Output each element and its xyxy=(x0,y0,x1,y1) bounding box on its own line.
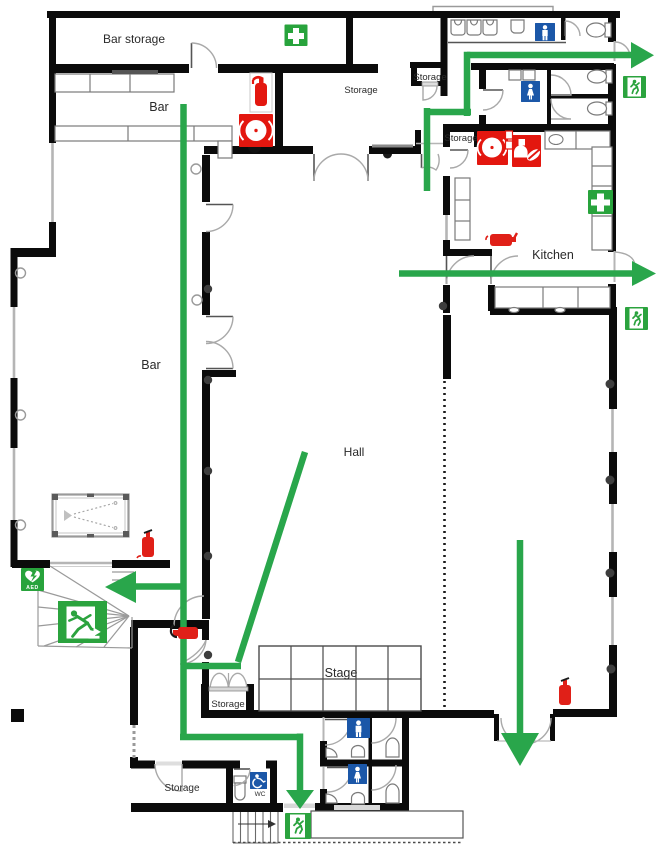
svg-text:Storage: Storage xyxy=(444,133,477,144)
svg-text:Kitchen: Kitchen xyxy=(532,248,574,262)
svg-text:WC: WC xyxy=(255,791,266,798)
svg-text:Storage: Storage xyxy=(164,783,199,794)
svg-text:Storage: Storage xyxy=(211,699,244,710)
svg-text:Stage: Stage xyxy=(325,666,358,680)
svg-text:Storage: Storage xyxy=(413,72,446,83)
svg-text:Bar: Bar xyxy=(141,358,160,372)
svg-text:Storage: Storage xyxy=(344,85,377,96)
svg-text:AED: AED xyxy=(26,585,39,591)
svg-text:Bar storage: Bar storage xyxy=(103,32,165,46)
svg-text:Bar: Bar xyxy=(149,100,168,114)
svg-text:Hall: Hall xyxy=(344,445,365,459)
